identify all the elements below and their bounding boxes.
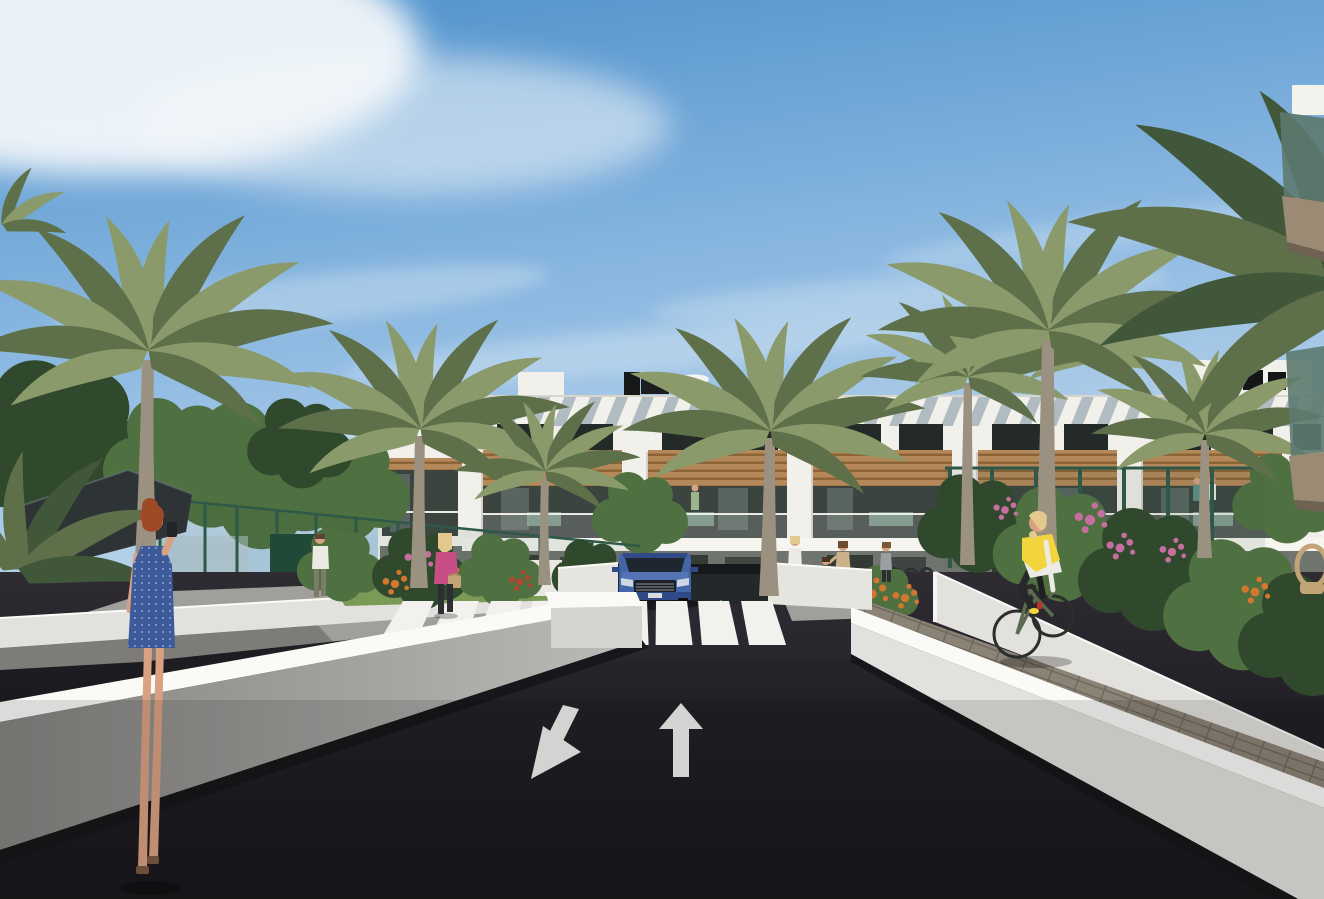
roof-bulkhead: [518, 372, 564, 398]
road-shadow-vignette: [0, 700, 1324, 899]
render-canvas: [0, 0, 1324, 899]
bike-taillight: [1037, 602, 1042, 609]
scene-root: [0, 0, 1324, 899]
camera-phone: [167, 522, 177, 537]
